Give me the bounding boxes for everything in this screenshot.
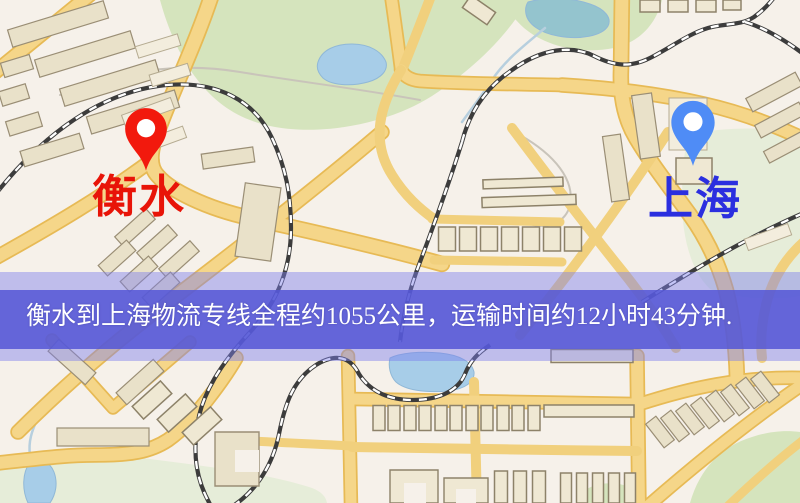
building — [523, 227, 540, 251]
destination-label: 上海 — [648, 176, 742, 221]
building — [404, 406, 416, 431]
building — [668, 0, 688, 12]
destination-pin-icon[interactable] — [667, 97, 719, 169]
route-info-banner: 衡水到上海物流专线全程约1055公里，运输时间约12小时43分钟. — [0, 272, 800, 361]
building — [514, 471, 527, 503]
building — [495, 471, 508, 503]
building — [544, 405, 634, 417]
map-screenshot: 衡水到上海物流专线全程约1055公里，运输时间约12小时43分钟. 衡水 上海 — [0, 0, 800, 503]
building — [561, 473, 572, 503]
building — [533, 471, 546, 503]
building — [483, 177, 563, 189]
building — [481, 227, 498, 251]
road — [637, 356, 639, 503]
origin-pin-icon[interactable] — [121, 100, 171, 178]
road — [252, 441, 352, 446]
building — [565, 227, 582, 251]
building — [404, 483, 426, 503]
building — [512, 406, 524, 431]
building — [456, 489, 476, 503]
building — [528, 406, 540, 431]
building — [481, 406, 493, 431]
building — [450, 406, 462, 431]
building — [640, 0, 660, 12]
building — [593, 473, 604, 503]
building — [460, 227, 477, 251]
building — [388, 406, 400, 431]
building — [577, 473, 588, 503]
building — [696, 0, 716, 12]
building — [502, 227, 519, 251]
building — [497, 406, 509, 431]
building — [57, 428, 149, 446]
water-area — [317, 44, 386, 85]
building — [625, 473, 636, 503]
building — [419, 406, 431, 431]
road — [432, 219, 560, 222]
building — [439, 227, 456, 251]
building — [235, 450, 259, 472]
route-info-text: 衡水到上海物流专线全程约1055公里，运输时间约12小时43分钟. — [0, 302, 732, 332]
building — [466, 406, 478, 431]
origin-label: 衡水 — [92, 174, 186, 219]
building — [544, 227, 561, 251]
building — [609, 473, 620, 503]
building — [435, 406, 447, 431]
road — [352, 447, 637, 451]
building — [373, 406, 385, 431]
road — [348, 356, 351, 503]
building — [723, 0, 741, 10]
road — [434, 260, 562, 262]
map-canvas[interactable] — [0, 0, 800, 503]
